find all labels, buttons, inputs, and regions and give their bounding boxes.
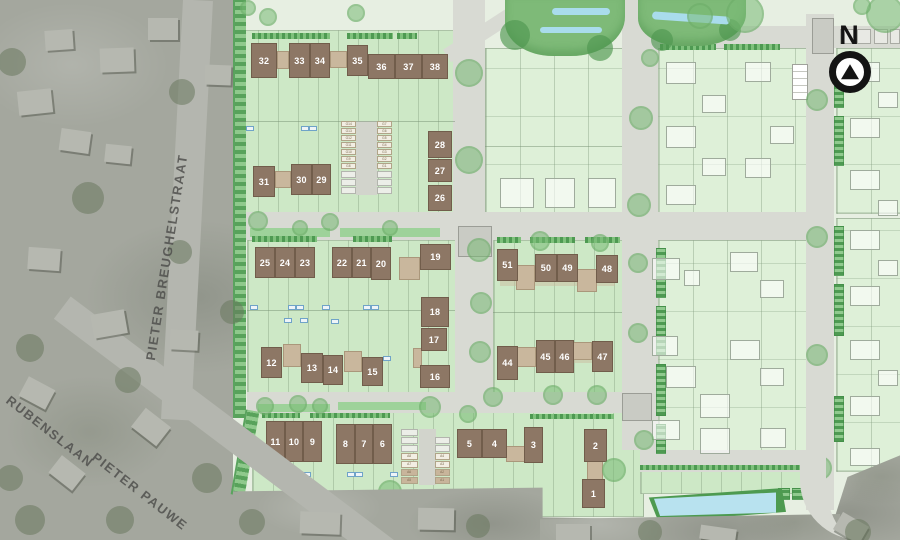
future-building-footprint (652, 258, 680, 280)
micro-garage-blank (377, 171, 392, 178)
lot-4[interactable]: 4 (482, 429, 507, 458)
garage (277, 51, 289, 69)
micro-garage: A1 (435, 477, 450, 484)
lot-13[interactable]: 13 (301, 353, 323, 383)
tree-icon (591, 234, 609, 252)
micro-garage: G9 (341, 156, 356, 162)
tree-icon (629, 106, 653, 130)
aerial-tree (106, 506, 134, 534)
parking-marker (331, 319, 339, 324)
lot-21[interactable]: 21 (352, 247, 371, 278)
lot-50[interactable]: 50 (535, 254, 557, 282)
lot-29[interactable]: 29 (312, 164, 331, 195)
lot-16[interactable]: 16 (420, 365, 450, 388)
micro-garage: A2 (435, 469, 450, 476)
parking-marker (371, 305, 379, 310)
future-building-footprint (878, 260, 898, 276)
future-building-footprint (700, 394, 730, 418)
parking-hedge-strip (834, 116, 844, 166)
parking-hedge-strip (834, 396, 844, 442)
lot-25[interactable]: 25 (255, 247, 275, 278)
tree-icon (248, 211, 268, 231)
tree-icon (687, 3, 713, 29)
shrub-blob (500, 20, 530, 50)
aerial-building-roof (300, 511, 341, 534)
plan-edge-hedge (233, 0, 246, 418)
street-label-rubenslaan: RUBENSLAAN (0, 389, 102, 475)
lot-12[interactable]: 12 (261, 347, 282, 378)
lot-46[interactable]: 46 (555, 340, 574, 373)
shrub-blob (587, 35, 613, 61)
future-building-footprint (850, 170, 880, 190)
tree-icon (259, 8, 277, 26)
lot-18[interactable]: 18 (421, 297, 449, 327)
lot-5[interactable]: 5 (457, 429, 482, 458)
lot-32[interactable]: 32 (251, 43, 277, 78)
micro-garage-blank (341, 187, 356, 194)
micro-garage: G3 (377, 149, 392, 155)
future-building-footprint (666, 62, 696, 84)
micro-garage: G2 (377, 156, 392, 162)
lot-15[interactable]: 15 (362, 357, 383, 386)
hedge-strip (497, 237, 521, 243)
parking-hedge-strip (834, 284, 844, 336)
tree-icon (459, 405, 477, 423)
micro-garage: G8 (341, 163, 356, 169)
future-building-footprint (745, 62, 771, 82)
lot-20[interactable]: 20 (371, 247, 391, 280)
micro-garage: G6 (377, 128, 392, 134)
aerial-building-roof (59, 128, 92, 154)
tree-icon (634, 430, 654, 450)
micro-garage-blank (435, 437, 450, 444)
aerial-tree (16, 334, 44, 362)
tree-icon (289, 395, 307, 413)
shrub-blob (651, 29, 673, 51)
lot-22[interactable]: 22 (332, 247, 352, 278)
lot-45[interactable]: 45 (536, 340, 555, 373)
parking-hedge-strip (834, 226, 844, 276)
lot-6[interactable]: 6 (373, 424, 392, 464)
aerial-building-roof (148, 18, 178, 40)
tree-icon (641, 49, 659, 67)
micro-garage: A5 (401, 477, 418, 484)
tree-icon (347, 4, 365, 22)
grass-verge (338, 402, 426, 410)
tree-icon (470, 292, 492, 314)
parking-marker (246, 126, 254, 131)
future-building-footprint (850, 396, 880, 416)
lot-7[interactable]: 7 (355, 424, 373, 464)
aerial-tree (115, 367, 141, 393)
micro-garage: G1 (377, 163, 392, 169)
micro-garage-blank (341, 179, 356, 186)
tree-icon (321, 213, 339, 231)
garage (283, 344, 301, 367)
parking-square (622, 393, 652, 421)
parking-marker (300, 318, 308, 323)
aerial-tree (15, 505, 45, 535)
micro-garage-blank (377, 187, 392, 194)
garage (506, 446, 525, 462)
micro-garage-blank (401, 437, 418, 444)
future-building-footprint (878, 200, 898, 216)
parking-marker (250, 305, 258, 310)
garage (517, 347, 536, 367)
tree-icon (419, 396, 441, 418)
future-building-footprint (702, 95, 726, 113)
future-building-footprint (666, 126, 696, 148)
lot-27[interactable]: 27 (428, 159, 452, 182)
tree-icon (806, 344, 828, 366)
micro-garage-blank (401, 445, 418, 452)
aerial-building-roof (205, 65, 232, 86)
tree-icon (628, 253, 648, 273)
aerial-building-roof (17, 88, 53, 115)
future-building-footprint (850, 230, 880, 250)
tree-icon (627, 193, 651, 217)
future-building-footprint (760, 428, 786, 448)
future-building-footprint (666, 366, 696, 388)
lot-33[interactable]: 33 (289, 43, 310, 78)
lot-47[interactable]: 47 (592, 341, 613, 372)
future-building-footprint (760, 280, 784, 298)
tree-icon (530, 231, 550, 251)
future-building-footprint (545, 178, 575, 208)
micro-garage: A6 (401, 469, 418, 476)
micro-garage: G13 (341, 128, 356, 134)
parking-marker (322, 305, 330, 310)
parking-marker (390, 472, 398, 477)
future-building-footprint (730, 340, 760, 360)
garage (573, 342, 592, 360)
parking-marker (347, 472, 355, 477)
parking-marker (355, 472, 363, 477)
tree-icon (382, 220, 398, 236)
aerial-tree (845, 519, 871, 540)
micro-garage: G11 (341, 142, 356, 148)
lot-44[interactable]: 44 (497, 346, 518, 380)
water-slat (552, 8, 610, 15)
parking-marker (288, 305, 296, 310)
footpath (356, 121, 377, 195)
parking-hedge-strip (656, 364, 666, 416)
hedge-strip (252, 236, 317, 242)
hedge-strip (530, 414, 614, 419)
future-building-footprint (588, 178, 616, 208)
future-building-footprint (850, 286, 880, 306)
micro-garage: G7 (377, 121, 392, 127)
future-building-footprint (850, 340, 880, 360)
aerial-building-roof (44, 29, 73, 51)
micro-garage: G4 (377, 142, 392, 148)
tree-icon (467, 238, 491, 262)
aerial-tree (466, 514, 490, 538)
lot-34[interactable]: 34 (310, 43, 330, 78)
parking-marker (284, 318, 292, 323)
garage (399, 257, 420, 280)
aerial-building-roof (100, 47, 135, 72)
lot-10[interactable]: 10 (285, 421, 303, 462)
tree-icon (240, 0, 256, 16)
hedge-strip (347, 33, 393, 39)
lot-48[interactable]: 48 (596, 255, 618, 283)
micro-garage: A3 (435, 461, 450, 468)
site-plan-canvas: PIETER BREUGHELSTRAAT RUBENSLAAN PIETER … (0, 0, 900, 540)
lot-3[interactable]: 3 (524, 427, 543, 463)
future-building-footprint (500, 178, 534, 208)
parking-ladder (792, 64, 808, 100)
future-building-footprint (730, 252, 758, 272)
hedge-strip (724, 44, 780, 50)
lot-17[interactable]: 17 (421, 328, 447, 351)
micro-garage-blank (341, 171, 356, 178)
lot-31[interactable]: 31 (253, 166, 275, 197)
lot-2[interactable]: 2 (584, 429, 607, 462)
lot-30[interactable]: 30 (291, 164, 312, 195)
micro-garage: G12 (341, 135, 356, 141)
micro-garage: G5 (377, 135, 392, 141)
lot-24[interactable]: 24 (275, 247, 295, 278)
micro-garage: G10 (341, 149, 356, 155)
water-slat (540, 27, 602, 33)
micro-garage: A7 (401, 461, 418, 468)
parking-marker (363, 305, 371, 310)
lot-35[interactable]: 35 (347, 45, 368, 76)
lot-49[interactable]: 49 (557, 254, 578, 282)
lot-14[interactable]: 14 (323, 355, 343, 385)
tree-icon (602, 458, 626, 482)
aerial-tree (0, 465, 23, 491)
garage (344, 351, 362, 372)
tree-icon (292, 220, 308, 236)
garage (516, 265, 535, 290)
future-building-footprint (684, 270, 700, 286)
tree-icon (312, 398, 328, 414)
lot-26[interactable]: 26 (428, 185, 452, 211)
lot-38[interactable]: 38 (422, 54, 448, 79)
north-arrow-icon (829, 51, 871, 93)
aerial-tree (220, 300, 244, 324)
hedge-strip (252, 33, 330, 39)
garage (577, 269, 597, 292)
micro-garage: A8 (401, 453, 418, 460)
future-building-footprint (745, 158, 771, 178)
lot-19[interactable]: 19 (420, 244, 451, 270)
micro-garage-blank (401, 429, 418, 436)
tree-icon (256, 397, 274, 415)
tree-icon (806, 226, 828, 248)
micro-garage: A4 (435, 453, 450, 460)
aerial-building-roof (169, 329, 198, 350)
aerial-tree (0, 48, 26, 76)
north-arrow-triangle (841, 64, 859, 79)
tree-icon (543, 385, 563, 405)
north-label: N (824, 20, 874, 51)
future-building-footprint (700, 428, 730, 454)
future-building-footprint (770, 126, 794, 144)
future-building-footprint (878, 92, 898, 108)
future-building-footprint (652, 420, 680, 440)
future-building-footprint (652, 336, 678, 356)
tree-icon (483, 387, 503, 407)
footpath (419, 429, 436, 485)
hedge-strip (310, 413, 390, 418)
future-building-footprint (878, 370, 898, 386)
parcel-divider (493, 312, 622, 313)
parcel-divider (485, 146, 622, 147)
road (622, 0, 658, 450)
future-building-footprint (760, 368, 784, 386)
lot-8[interactable]: 8 (336, 424, 355, 464)
micro-garage: G14 (341, 121, 356, 127)
aerial-tree (638, 520, 662, 540)
future-building-footprint (666, 185, 696, 205)
aerial-tree (169, 79, 195, 105)
tree-icon (455, 146, 483, 174)
parking-marker (296, 305, 304, 310)
parking-marker (383, 356, 391, 361)
future-building-footprint (850, 118, 880, 138)
parking-marker (301, 126, 309, 131)
street-label-pieter-pauwe: PIETER PAUWE (71, 435, 209, 540)
hedge-strip (397, 33, 417, 39)
tree-icon (587, 385, 607, 405)
aerial-tree (239, 509, 265, 535)
aerial-building-roof (418, 508, 454, 531)
tree-icon (628, 323, 648, 343)
micro-garage-blank (435, 445, 450, 452)
hedge-strip (353, 236, 392, 242)
micro-garage-blank (377, 179, 392, 186)
lot-28[interactable]: 28 (428, 131, 452, 158)
hedge-strip (640, 465, 808, 470)
lot-9[interactable]: 9 (303, 421, 322, 462)
aerial-building-roof (556, 524, 590, 540)
aerial-building-roof (27, 247, 60, 271)
aerial-tree (192, 463, 222, 493)
tree-icon (455, 59, 483, 87)
future-building-footprint (702, 158, 726, 176)
lot-51[interactable]: 51 (497, 249, 518, 281)
garage (275, 171, 291, 188)
road (455, 240, 493, 392)
aerial-tree (72, 182, 104, 214)
lot-23[interactable]: 23 (295, 247, 315, 278)
lot-37[interactable]: 37 (395, 54, 422, 79)
aerial-building-roof (104, 144, 132, 165)
tree-icon (469, 341, 491, 363)
parking-marker (309, 126, 317, 131)
garage (587, 461, 603, 480)
lot-1[interactable]: 1 (582, 479, 605, 508)
north-indicator: N (824, 20, 874, 120)
lot-36[interactable]: 36 (368, 54, 395, 79)
garage (330, 51, 347, 68)
